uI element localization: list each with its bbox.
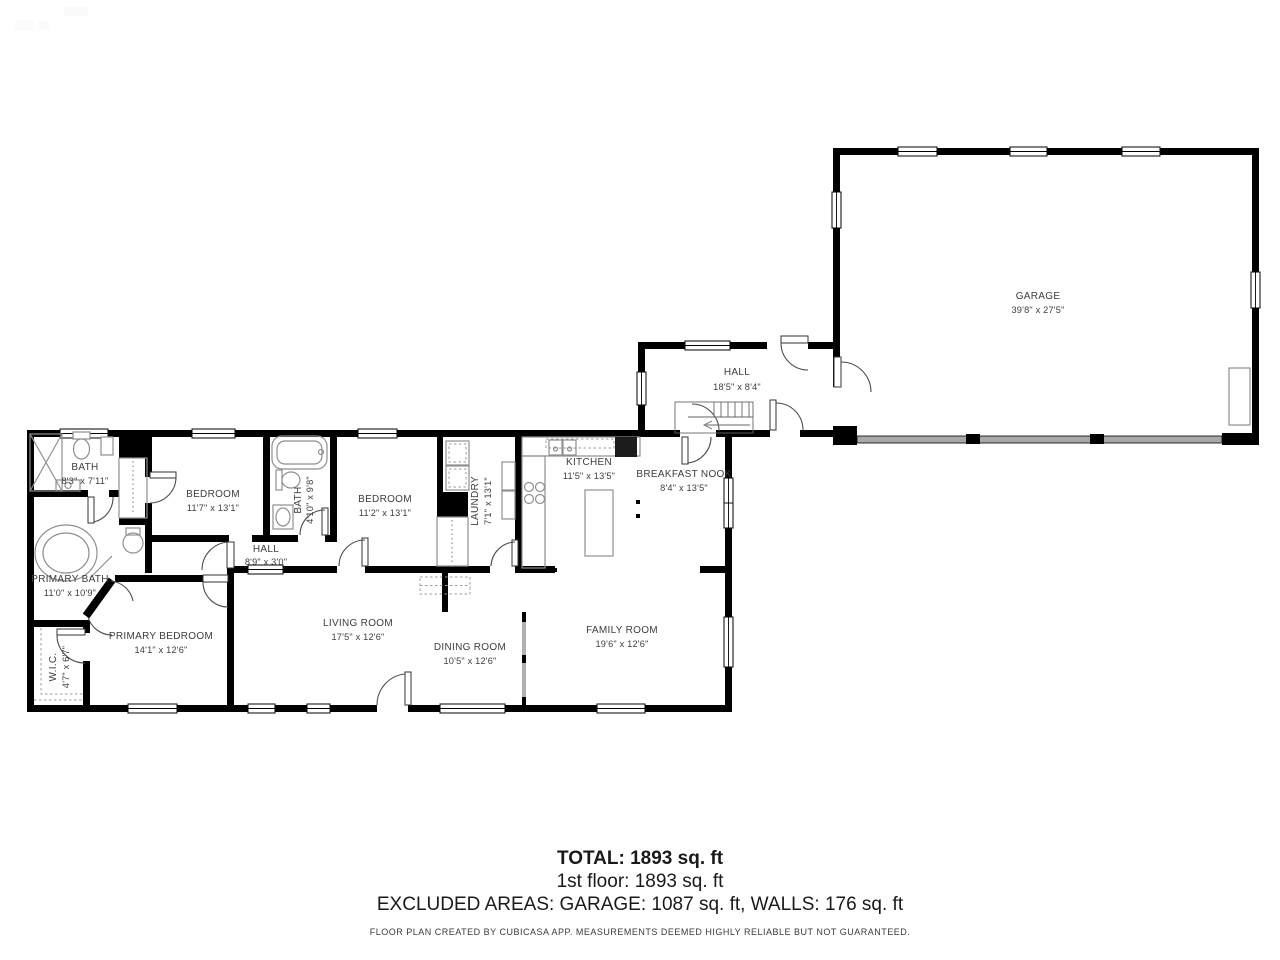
closet [119,458,147,518]
total-area: TOTAL: 1893 sq. ft [0,847,1280,870]
room-label-laundry: LAUNDRY [470,476,481,526]
garage-utility [1229,368,1250,425]
room-label-bath: BATH [71,462,98,473]
watermark [15,7,88,31]
pedestal-sink-icon [123,528,143,553]
fridge-icon [615,437,637,457]
disclaimer: FLOOR PLAN CREATED BY CUBICASA APP. MEAS… [0,927,1280,937]
room-dims-family-room: 19'6" x 12'6" [596,639,649,649]
area-summary: TOTAL: 1893 sq. ft 1st floor: 1893 sq. f… [0,847,1280,937]
floorplan-page: GARAGE 39'8" x 27'5" HALL 18'5" x 8'4" K… [0,0,1280,960]
room-dims-bath: 8'3" x 7'11" [62,476,109,486]
room-dims-primary-bedroom: 14'1" x 12'6" [135,645,188,655]
room-label-garage: GARAGE [1016,291,1061,302]
excluded-areas: EXCLUDED AREAS: GARAGE: 1087 sq. ft, WAL… [0,893,1280,916]
room-label-family-room: FAMILY ROOM [586,625,658,636]
room-dims-dining-room: 10'5" x 12'6" [444,656,497,666]
closet [437,517,468,566]
dryer-icon [446,466,469,490]
laundry-cabinet [502,491,515,519]
room-dims-living-room: 17'5" x 12'6" [332,632,385,642]
floor-area: 1st floor: 1893 sq. ft [0,870,1280,893]
room-dims-hall-lower: 8'9" x 3'0" [245,557,287,567]
room-dims-garage: 39'8" x 27'5" [1012,305,1065,315]
kitchen-sink-icon [549,440,576,455]
stove-icon [525,483,545,504]
room-label-breakfast-nook: BREAKFAST NOOK [636,469,731,480]
bathtub-icon [272,436,327,469]
room-dims-wic: 4'7" x 6'7" [61,646,71,688]
room-labels: GARAGE 39'8" x 27'5" HALL 18'5" x 8'4" K… [31,291,1064,688]
room-label-bedroom-1: BEDROOM [186,489,240,500]
room-dims-bedroom-1: 11'7" x 13'1" [187,503,239,513]
floor-plan-svg: GARAGE 39'8" x 27'5" HALL 18'5" x 8'4" K… [0,0,1280,960]
room-label-hall-upper: HALL [724,367,750,378]
kitchen-island [585,490,613,556]
shower-icon [30,434,62,491]
room-dims-primary-bath: 11'0" x 10'9" [44,588,96,598]
room-dims-bedroom-2: 11'2" x 13'1" [359,508,411,518]
room-dims-breakfast-nook: 8'4" x 13'5" [660,483,708,493]
room-label-primary-bath: PRIMARY BATH [31,574,109,585]
room-label-bath-2: BATH [293,486,304,513]
room-label-bedroom-2: BEDROOM [358,494,412,505]
room-dims-laundry: 7'1" x 13'1" [483,477,493,525]
bathtub-round-icon [35,525,112,581]
room-label-wic: W.I.C. [48,652,59,681]
room-dims-hall-upper: 18'5" x 8'4" [713,382,761,392]
room-dims-bath-2: 4'10" x 9'8" [305,476,315,524]
sink-icon [273,505,293,529]
laundry-cabinet [502,462,515,490]
toilet-icon [73,432,90,459]
room-label-hall-lower: HALL [253,544,279,555]
cabinet-icon [101,437,113,455]
garage-door-band [857,436,1222,443]
stairs-icon [675,402,753,433]
room-label-primary-bedroom: PRIMARY BEDROOM [109,631,213,642]
washer-icon [446,441,469,465]
room-label-kitchen: KITCHEN [566,457,612,468]
room-dims-kitchen: 11'5" x 13'5" [563,471,615,481]
room-label-living-room: LIVING ROOM [323,618,393,629]
room-label-dining-room: DINING ROOM [434,642,506,653]
